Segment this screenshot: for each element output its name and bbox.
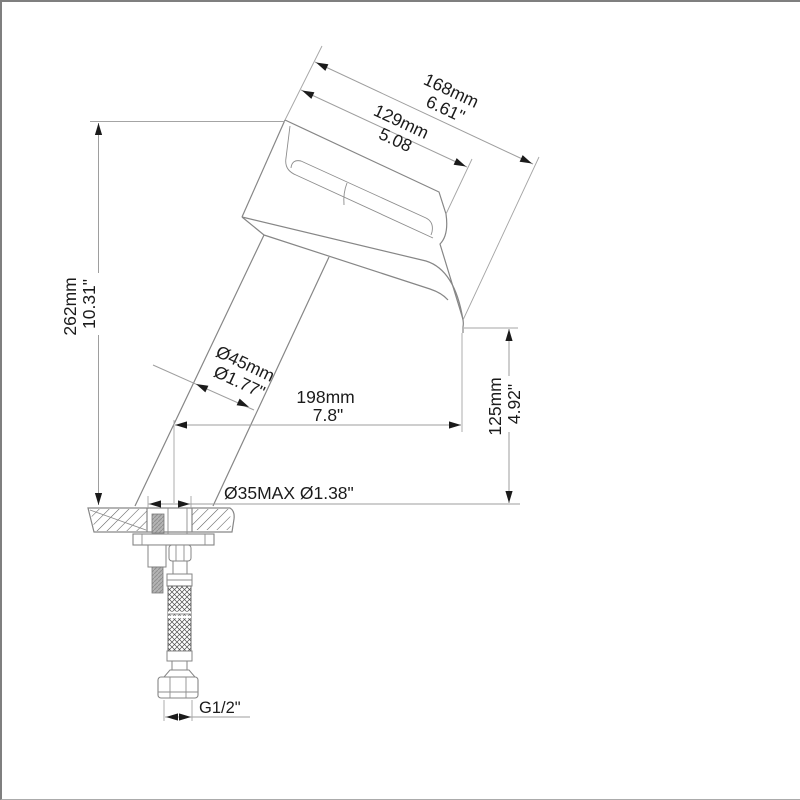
rod-lock-nut (148, 545, 166, 567)
spout-head-outline (285, 120, 463, 333)
ext-tip-upper (463, 157, 539, 320)
hose-neck-bottom (172, 661, 187, 670)
braided-hose (168, 586, 191, 651)
countertop-section (88, 508, 234, 534)
label-thread: G1/2" (199, 699, 241, 717)
technical-drawing: 262mm 10.31" 168mm 6.61" 129mm 5.08 Ø45m… (2, 2, 800, 800)
spout-underside (242, 217, 463, 320)
dimension-tip-height: 125mm 4.92" (485, 329, 524, 503)
hose-ferrule-bottom (167, 651, 192, 661)
label-spout-reach: 198mm 7.8" (296, 387, 359, 425)
hose-top-fitting (169, 545, 191, 561)
arrow-left (166, 713, 178, 720)
arrow-upleft (314, 59, 328, 71)
arrow-left (175, 421, 187, 428)
arrow-downright (454, 158, 468, 170)
arrow-right (179, 713, 191, 720)
drawing-page: 262mm 10.31" 168mm 6.61" 129mm 5.08 Ø45m… (0, 0, 800, 800)
arrow-down (505, 491, 512, 503)
arrow-upleft (300, 87, 314, 99)
arrow-downright (520, 155, 534, 167)
supply-pipe-in-hole (168, 508, 187, 534)
faucet-body (135, 120, 463, 506)
arrow-right (449, 421, 461, 428)
ext-slot-right (446, 159, 472, 214)
threaded-rod (152, 567, 163, 593)
dimension-mounting-hole: Ø35MAX Ø1.38" (148, 483, 520, 508)
extension-lines (90, 46, 539, 721)
label-tip-height: 125mm 4.92" (485, 372, 524, 435)
label-body-diameter: Ø45mm Ø1.77" (205, 341, 282, 405)
ext-spout-topleft (285, 46, 322, 120)
hex-nut (158, 677, 198, 698)
label-overall-height: 262mm 10.31" (60, 272, 99, 335)
spout-head-left-edge (242, 120, 285, 217)
spout-slot-upper-edge (291, 161, 432, 235)
mounting-plate (133, 534, 214, 545)
arrow-up (95, 123, 102, 135)
hose-neck-top (173, 561, 187, 574)
arrow-upleft (194, 381, 208, 393)
dimension-spout-outer-length: 168mm 6.61" (314, 59, 533, 167)
dimension-thread: G1/2" (165, 699, 250, 721)
arrow-down (95, 493, 102, 505)
label-mounting-hole: Ø35MAX Ø1.38" (224, 483, 354, 503)
arrow-right (178, 500, 190, 507)
dimension-overall-height: 262mm 10.31" (60, 123, 102, 505)
arrow-up (505, 329, 512, 341)
under-counter-assembly (133, 534, 214, 698)
spout-slot-divider (344, 183, 347, 205)
threaded-rod-section (152, 514, 164, 533)
dimension-spout-reach: 198mm 7.8" (175, 387, 461, 429)
arrow-left (149, 500, 161, 507)
counter-hatch-right (192, 509, 231, 530)
nut-taper (164, 670, 195, 677)
arrow-downright (237, 399, 251, 411)
